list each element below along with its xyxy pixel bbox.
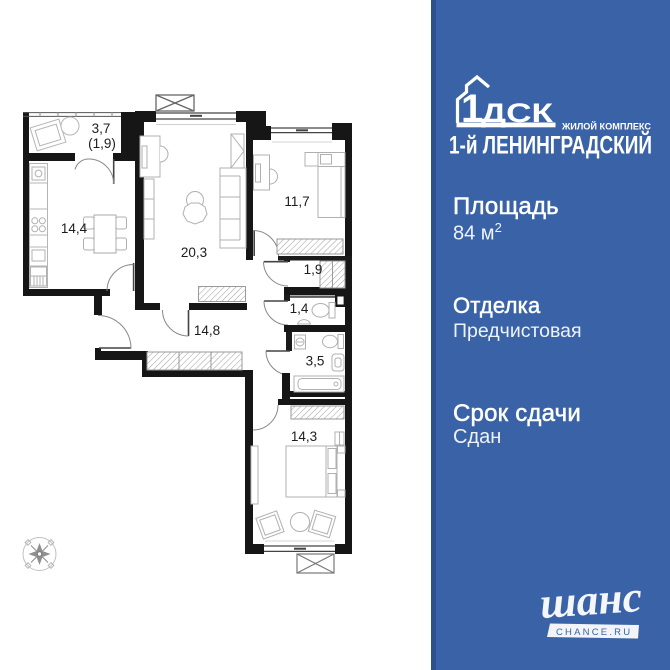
svg-text:1,9: 1,9	[304, 262, 323, 277]
svg-text:1-й ЛЕНИНГРАДСКИЙ: 1-й ЛЕНИНГРАДСКИЙ	[449, 130, 652, 160]
svg-text:11,7: 11,7	[284, 194, 309, 209]
svg-text:14,4: 14,4	[61, 221, 88, 236]
svg-text:CHANCE.RU: CHANCE.RU	[556, 627, 632, 638]
svg-text:1,4: 1,4	[290, 301, 309, 316]
svg-text:20,3: 20,3	[181, 245, 207, 260]
svg-text:3,7: 3,7	[92, 121, 111, 136]
svg-text:14,3: 14,3	[291, 429, 317, 444]
svg-text:шанс: шанс	[538, 578, 643, 628]
svg-text:3,5: 3,5	[306, 354, 325, 369]
svg-text:14,8: 14,8	[194, 323, 220, 338]
svg-text:(1,9): (1,9)	[88, 136, 116, 151]
svg-text:ЖИЛОЙ КОМПЛЕКС: ЖИЛОЙ КОМПЛЕКС	[561, 121, 652, 132]
